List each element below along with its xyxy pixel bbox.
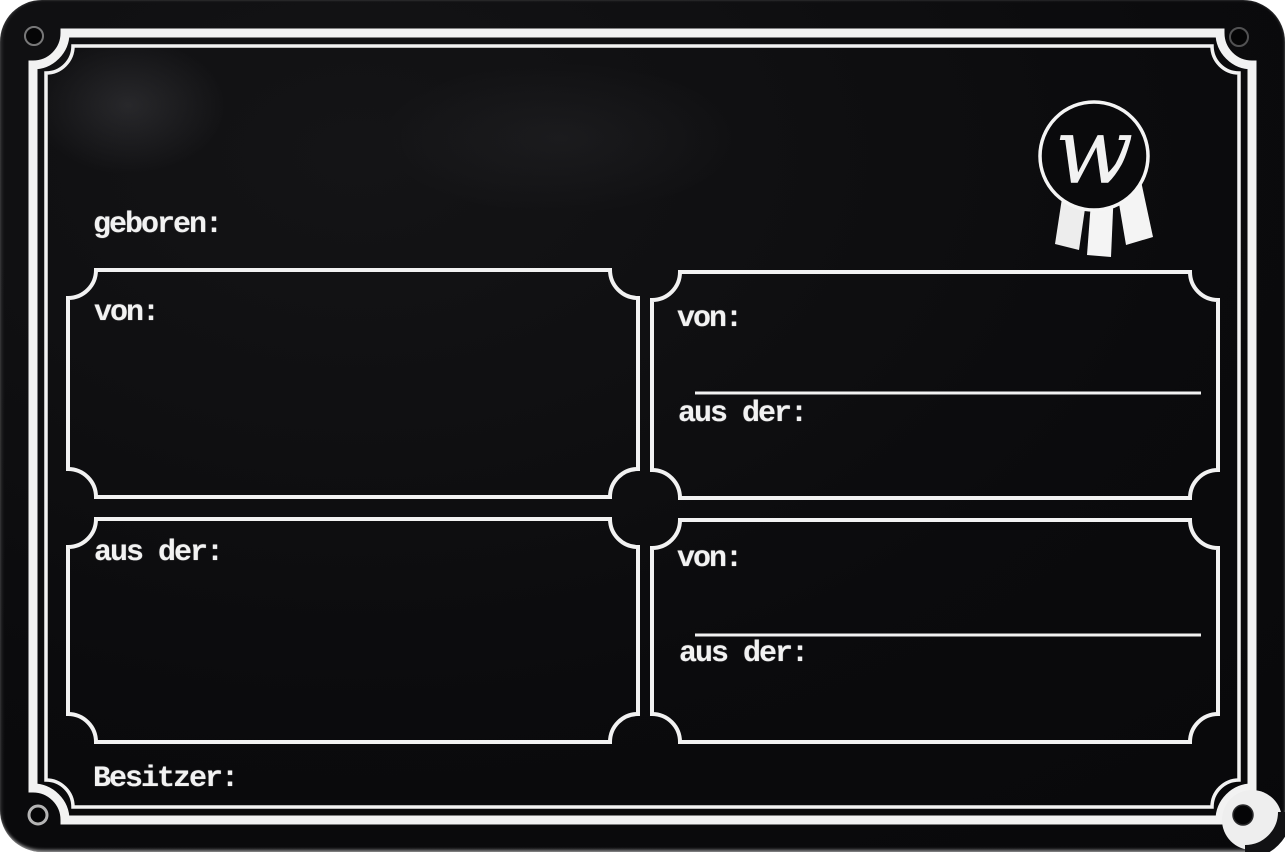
born-label: geboren: (93, 208, 221, 242)
box-top-right-sire-label: von: (677, 302, 741, 336)
box-bottom-left-dam-label: aus der: (94, 536, 222, 570)
box-bottom-right-dam-label: aus der: (679, 637, 807, 671)
screw-hole-top-right (1230, 28, 1248, 46)
box-top-right-dam-label: aus der: (678, 397, 806, 431)
photo-backdrop: geboren: von: von: aus der: aus der: von… (0, 0, 1285, 852)
box-top-left-sire-label: von: (94, 296, 158, 330)
screw-hole-top-left (25, 27, 43, 45)
screw-hole-bottom-left (29, 806, 47, 824)
owner-label: Besitzer: (93, 762, 237, 796)
box-bottom-right-sire-label: von: (677, 542, 741, 576)
logo-monogram: w (1039, 99, 1149, 213)
screw-hole-bottom-right (1233, 805, 1253, 825)
